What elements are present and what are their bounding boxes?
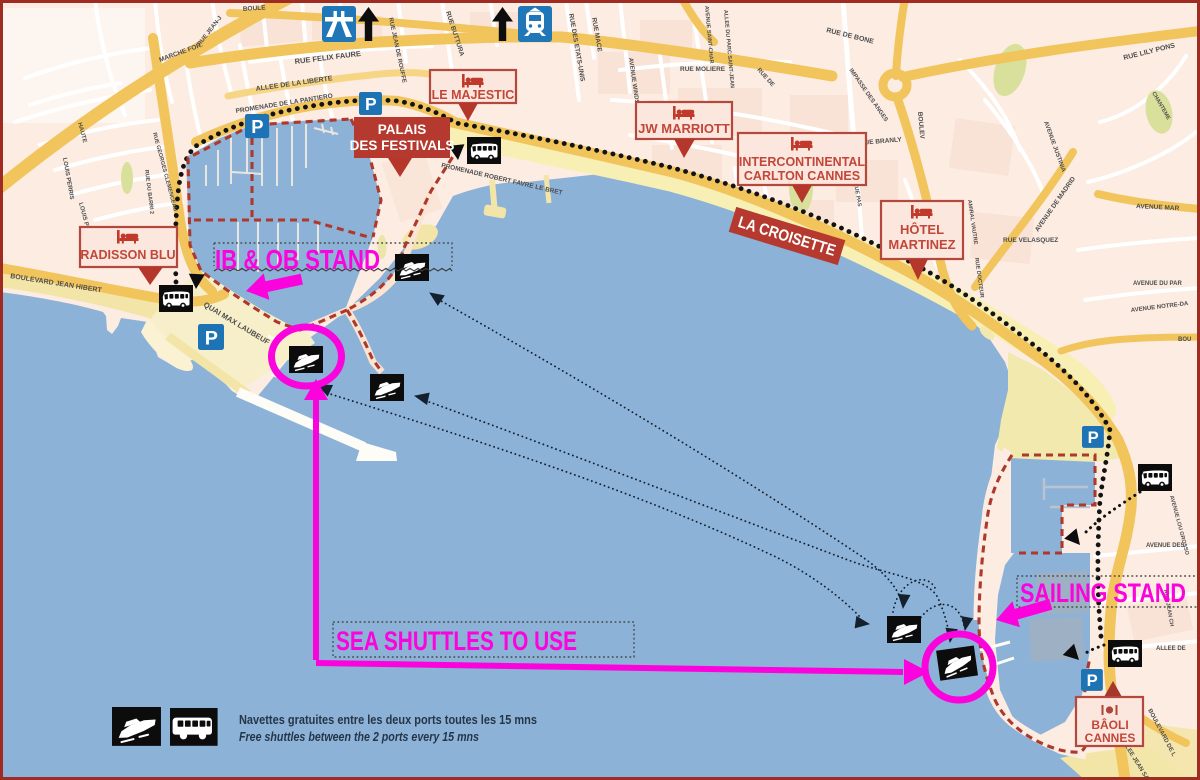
svg-text:ALLEE DE: ALLEE DE (1156, 646, 1186, 652)
svg-text:INTERCONTINENTAL: INTERCONTINENTAL (739, 155, 866, 169)
svg-text:RADISSON BLU: RADISSON BLU (80, 248, 175, 262)
svg-text:LE MAJESTIC: LE MAJESTIC (432, 88, 515, 102)
svg-text:SEA SHUTTLES TO USE: SEA SHUTTLES TO USE (336, 626, 577, 656)
svg-text:DES FESTIVALS: DES FESTIVALS (350, 138, 455, 153)
svg-text:Navettes gratuites entre les d: Navettes gratuites entre les deux ports … (239, 712, 537, 727)
svg-text:IB & OB STAND: IB & OB STAND (215, 244, 380, 275)
svg-text:HÔTEL: HÔTEL (900, 222, 944, 237)
svg-text:AVENUE DU PAR: AVENUE DU PAR (1133, 281, 1182, 287)
svg-text:RUE VELASQUEZ: RUE VELASQUEZ (1003, 237, 1058, 244)
svg-text:BOU: BOU (1178, 337, 1191, 343)
svg-text:BÂOLI: BÂOLI (1091, 717, 1128, 732)
svg-text:MARTINEZ: MARTINEZ (888, 237, 955, 252)
svg-text:CANNES: CANNES (1085, 731, 1136, 745)
svg-text:Free shuttles between the 2 po: Free shuttles between the 2 ports every … (239, 729, 479, 744)
svg-text:CARLTON CANNES: CARLTON CANNES (744, 169, 860, 183)
svg-text:JW MARRIOTT: JW MARRIOTT (638, 121, 730, 136)
svg-text:RUE MOLIERE: RUE MOLIERE (680, 66, 726, 73)
svg-text:PALAIS: PALAIS (378, 122, 427, 137)
svg-text:AVENUE DES: AVENUE DES (1146, 543, 1185, 549)
